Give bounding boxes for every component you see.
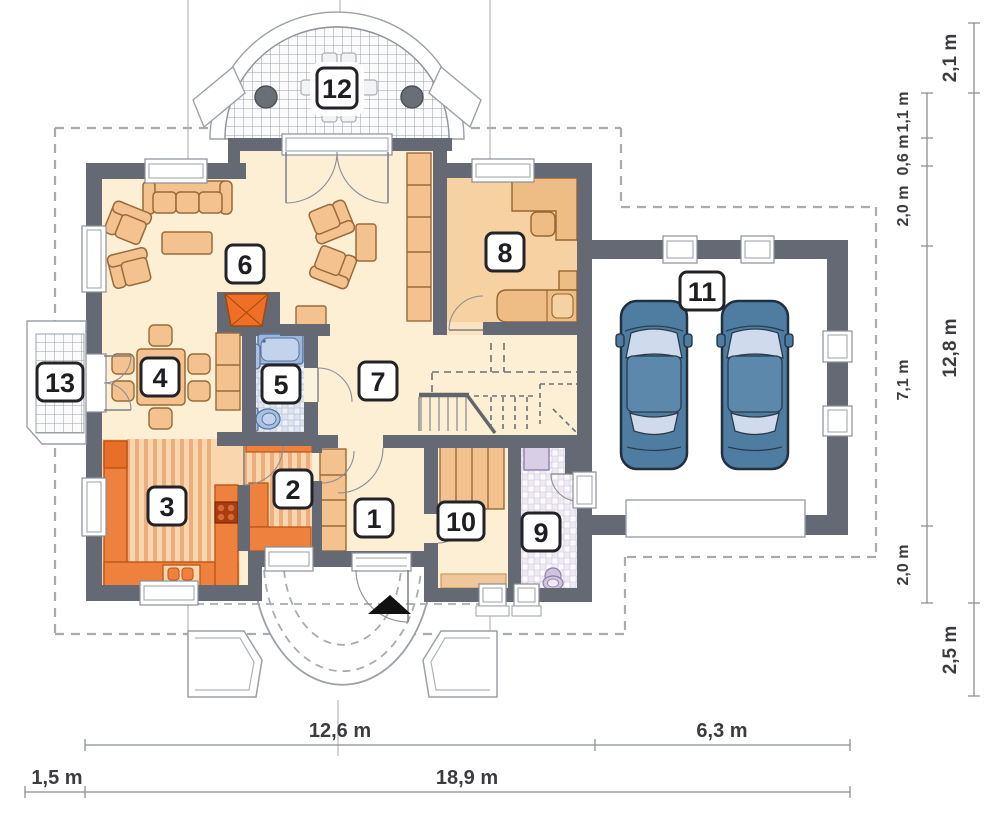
svg-text:1: 1 xyxy=(366,504,381,534)
svg-text:0,6 m: 0,6 m xyxy=(895,135,912,176)
svg-text:10: 10 xyxy=(446,507,476,537)
svg-text:5: 5 xyxy=(273,370,288,400)
svg-text:6,3 m: 6,3 m xyxy=(696,720,747,742)
svg-text:12,6 m: 12,6 m xyxy=(309,720,371,742)
svg-text:6: 6 xyxy=(237,250,252,280)
svg-text:11: 11 xyxy=(688,277,717,307)
svg-text:7: 7 xyxy=(370,367,385,397)
svg-text:3: 3 xyxy=(159,492,174,522)
svg-text:1,1 m: 1,1 m xyxy=(895,92,912,133)
svg-text:2,1 m: 2,1 m xyxy=(940,34,961,83)
svg-text:12,8 m: 12,8 m xyxy=(940,318,961,377)
svg-text:1,5 m: 1,5 m xyxy=(31,767,82,789)
svg-text:9: 9 xyxy=(533,518,548,548)
svg-text:2,5 m: 2,5 m xyxy=(940,626,961,675)
svg-text:8: 8 xyxy=(497,238,512,268)
svg-text:13: 13 xyxy=(45,368,75,398)
svg-text:2: 2 xyxy=(285,475,300,505)
svg-text:2,0 m: 2,0 m xyxy=(895,186,912,227)
svg-text:18,9 m: 18,9 m xyxy=(436,767,498,789)
svg-text:4: 4 xyxy=(152,363,167,393)
svg-text:12: 12 xyxy=(322,74,352,104)
svg-text:2,0 m: 2,0 m xyxy=(895,545,912,586)
svg-text:7,1 m: 7,1 m xyxy=(895,360,912,401)
